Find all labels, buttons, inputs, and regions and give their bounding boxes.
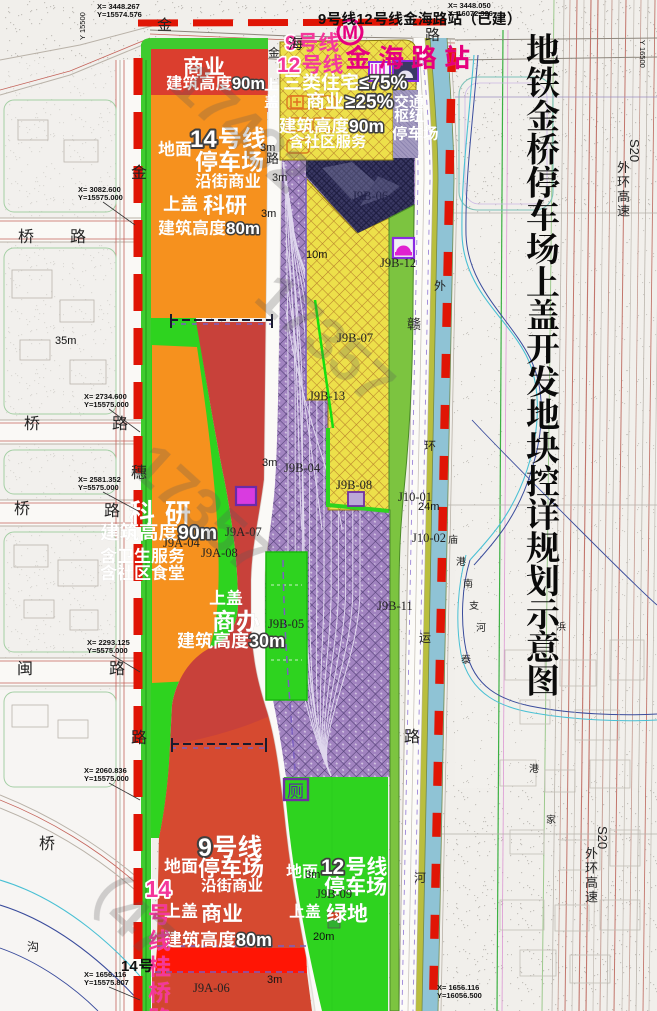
svg-text:9: 9 [198,834,212,862]
svg-text:3m: 3m [261,208,276,220]
svg-text:35m: 35m [55,335,76,347]
svg-text:J9B-06: J9B-06 [352,189,388,203]
svg-text:80m: 80m [226,219,260,238]
svg-text:Y=15574.576: Y=15574.576 [97,10,142,19]
svg-text:Y=5575.000: Y=5575.000 [78,483,119,492]
svg-text:J9B-08: J9B-08 [336,478,372,492]
svg-text:Y=15575.000: Y=15575.000 [84,774,129,783]
svg-text:12: 12 [277,54,300,77]
svg-text:≥25%: ≥25% [345,92,394,113]
svg-text:12: 12 [356,12,372,28]
svg-text:S20: S20 [595,826,610,849]
svg-text:Y 16500: Y 16500 [638,40,647,68]
svg-text:J9A-06: J9A-06 [193,981,230,995]
svg-text:Y=16056.500: Y=16056.500 [437,991,482,1000]
svg-text:10m: 10m [306,249,327,261]
svg-text:20m: 20m [313,931,334,943]
svg-text:12: 12 [321,856,344,879]
svg-text:9: 9 [318,12,326,28]
svg-text:Y 15500: Y 15500 [78,12,87,40]
svg-text:Y=16072.326: Y=16072.326 [448,9,493,18]
svg-text:J9B-05: J9B-05 [268,617,304,631]
svg-text:Y=15575.000: Y=15575.000 [84,400,129,409]
svg-text:S20: S20 [627,139,642,162]
svg-text:24m: 24m [418,501,439,513]
svg-text:Y=15575.807: Y=15575.807 [84,978,129,987]
svg-text:Y=15575.000: Y=15575.000 [78,193,123,202]
svg-text:≤75%: ≤75% [359,73,408,94]
svg-text:9: 9 [285,32,297,55]
svg-text:3m: 3m [267,974,282,986]
svg-text:J9B-04: J9B-04 [284,461,321,475]
svg-text:J9B-09: J9B-09 [316,887,352,901]
svg-text:30m: 30m [249,631,285,651]
svg-text:Y=5575.000: Y=5575.000 [87,646,128,655]
svg-text:J10-02: J10-02 [412,531,446,545]
svg-text:3m: 3m [262,457,277,469]
svg-text:J9B-11: J9B-11 [377,599,413,613]
svg-text:J9B-12: J9B-12 [380,256,416,270]
svg-text:80m: 80m [236,930,272,950]
svg-text:3m: 3m [305,869,320,881]
svg-text:90m: 90m [349,116,384,136]
